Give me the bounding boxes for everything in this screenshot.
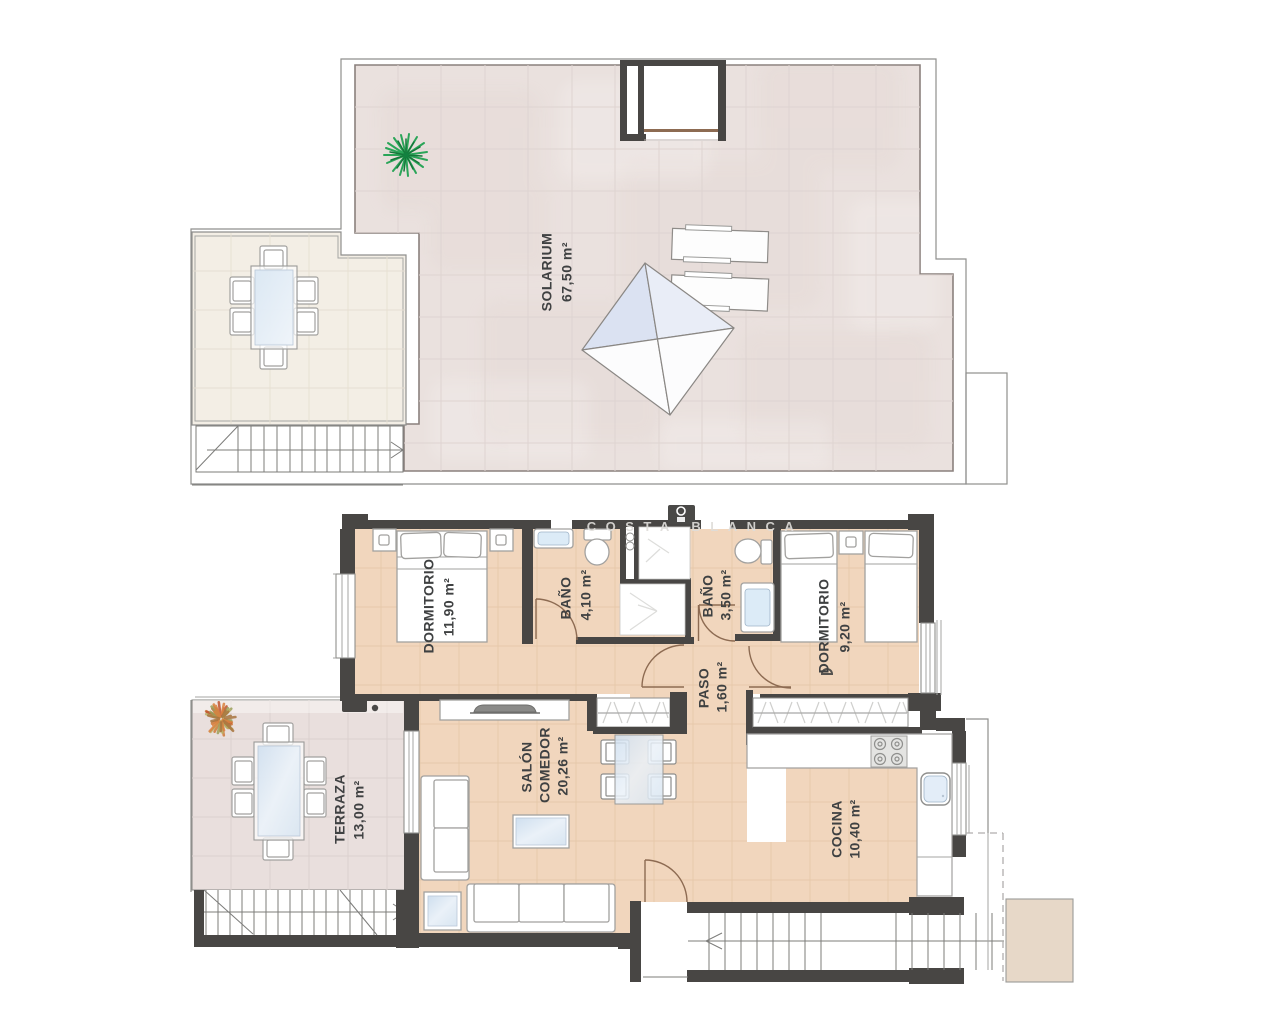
svg-text:PASO: PASO [696, 668, 712, 708]
svg-text:20,26 m²: 20,26 m² [555, 736, 571, 795]
svg-text:BAÑO: BAÑO [699, 575, 716, 618]
svg-text:67,50 m²: 67,50 m² [559, 242, 575, 302]
svg-text:10,40 m²: 10,40 m² [847, 799, 863, 858]
svg-text:DORMITORIO: DORMITORIO [816, 579, 832, 674]
svg-text:TERRAZA: TERRAZA [332, 774, 348, 844]
svg-text:COMEDOR: COMEDOR [537, 727, 553, 803]
svg-text:SOLARIUM: SOLARIUM [539, 233, 555, 312]
svg-text:11,90 m²: 11,90 m² [441, 578, 457, 636]
svg-text:DORMITORIO: DORMITORIO [421, 559, 437, 654]
svg-text:13,00 m²: 13,00 m² [351, 780, 367, 839]
svg-text:3,50 m²: 3,50 m² [718, 569, 734, 620]
svg-text:SALÓN: SALÓN [518, 742, 535, 793]
svg-text:1,60 m²: 1,60 m² [714, 661, 730, 712]
svg-text:COSTA BLANCA: COSTA BLANCA [587, 519, 804, 534]
svg-text:4,10 m²: 4,10 m² [578, 569, 594, 620]
svg-text:9,20 m²: 9,20 m² [837, 601, 853, 652]
svg-text:COCINA: COCINA [829, 800, 845, 858]
svg-text:BAÑO: BAÑO [557, 577, 574, 620]
